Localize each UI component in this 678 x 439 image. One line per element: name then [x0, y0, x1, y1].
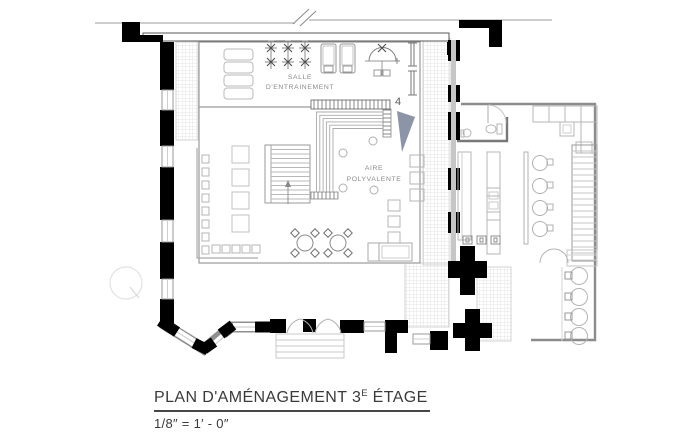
square-tables — [232, 146, 249, 232]
title-block: PLAN D'AMÉNAGEMENT 3E ÉTAGE 1/8″ = 1′ - … — [154, 388, 430, 431]
training-room: SALLE D'ENTRAINEMENT — [224, 41, 417, 99]
wall-left-1 — [160, 42, 174, 90]
bleacher-right-cap — [383, 109, 391, 137]
wall-left-4 — [160, 242, 174, 279]
window-left-3 — [162, 220, 173, 242]
wall-corridor-gray — [451, 40, 456, 266]
wall-left-2 — [160, 110, 174, 146]
weight-machine — [265, 41, 277, 69]
locker-column — [202, 155, 209, 254]
drawing-title: PLAN D'AMÉNAGEMENT 3E ÉTAGE — [154, 388, 430, 412]
training-room-label-1: SALLE — [288, 74, 312, 81]
bench-cabinet — [368, 243, 412, 261]
wall-bottom-2 — [340, 320, 364, 333]
exercise-bike — [365, 44, 400, 76]
interior-partitions — [143, 33, 595, 340]
multipurpose-label-2: POLYVALENTE — [347, 176, 402, 183]
window-bottom-2 — [413, 334, 430, 344]
side-seats — [388, 155, 424, 243]
multipurpose-label-1: AIRE — [365, 165, 383, 172]
hatch-areas — [176, 38, 511, 341]
weight-machine — [299, 41, 311, 69]
weight-machines — [265, 41, 311, 69]
grid-bubble — [110, 267, 142, 299]
multipurpose-area: AIRE POLYVALENTE 4 — [265, 96, 424, 261]
coffee-table — [560, 122, 574, 136]
wall-bottom-4 — [430, 331, 448, 350]
center-staircase — [265, 145, 310, 204]
bathroom-door-swing — [488, 105, 506, 123]
terrace — [562, 267, 588, 345]
round-cafe-tables — [291, 229, 352, 257]
cafe-table — [291, 229, 319, 257]
drawing-scale: 1/8″ = 1′ - 0″ — [154, 412, 430, 431]
window-bottom-1 — [364, 322, 385, 331]
sink-icon — [461, 129, 471, 137]
section-marker-arrow — [397, 111, 415, 152]
bar-lounge — [458, 105, 597, 266]
left-lounge — [202, 146, 260, 254]
bleacher-bottom-cap — [311, 192, 338, 199]
window-left-2 — [162, 146, 173, 167]
hatch-left-corridor — [176, 42, 198, 140]
wall-bottom-3 — [385, 320, 408, 353]
floor-plan-sheet: SALLE D'ENTRAINEMENT — [0, 0, 678, 439]
sectional-sofa — [533, 106, 597, 153]
bay-window-wall — [160, 321, 284, 350]
equipment-row — [463, 236, 500, 244]
locker-row — [212, 245, 260, 253]
bar-stools — [533, 156, 554, 237]
wall-left-3 — [160, 167, 174, 220]
cafe-table — [324, 229, 352, 257]
right-staircase — [567, 145, 597, 266]
i-beam-column — [408, 71, 417, 95]
treadmills — [321, 44, 355, 73]
section-marker-number: 4 — [395, 96, 401, 108]
wall-top-left-corner — [122, 22, 163, 42]
weight-machine — [282, 41, 294, 69]
floor-plan-drawing: SALLE D'ENTRAINEMENT — [0, 0, 678, 439]
hatch-lower-corridor — [405, 263, 449, 327]
steel-columns — [408, 43, 417, 95]
bar-door-arches — [540, 249, 568, 263]
terrace-table — [565, 289, 588, 306]
i-beam-column — [408, 43, 417, 66]
bleacher-top-bar — [311, 100, 390, 109]
terrace-table — [565, 268, 588, 285]
training-room-label-2: D'ENTRAINEMENT — [266, 84, 334, 91]
bathroom — [461, 105, 506, 137]
terrace-table — [565, 328, 588, 345]
exercise-mats — [224, 49, 253, 99]
window-left-1 — [162, 90, 173, 110]
training-top-wall — [143, 33, 449, 41]
toilet-icon — [486, 124, 502, 134]
window-left-4 — [162, 279, 173, 299]
bar-counter — [524, 152, 553, 244]
hatch-main-corridor — [423, 38, 450, 265]
terrace-table — [565, 309, 588, 326]
